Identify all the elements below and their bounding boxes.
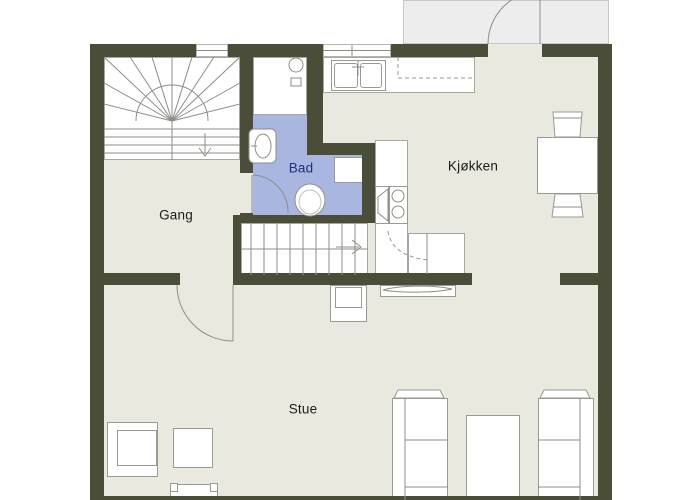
- entry-porch: [403, 0, 609, 44]
- sofa-facing-right: [392, 398, 448, 500]
- wc-nook: [253, 57, 307, 115]
- kitchen-sink-basin-left: [334, 63, 358, 88]
- floor-plan: Gang Bad Kjøkken Stue: [0, 0, 700, 500]
- room-label-gang: Gang: [159, 208, 193, 223]
- room-label-kjokken: Kjøkken: [448, 159, 498, 174]
- window-kitchen: [323, 44, 391, 57]
- wall-stair-bad: [240, 57, 253, 173]
- armchair-left-seat: [117, 430, 157, 466]
- staircase-lower-area: [241, 223, 368, 275]
- wall-bad-right: [362, 143, 375, 223]
- tv-bench: [380, 285, 456, 297]
- room-label-bad: Bad: [289, 161, 314, 176]
- kitchen-sink-basin-right: [360, 63, 382, 88]
- shower-cabinet: [334, 157, 363, 183]
- staircase-upper-area: [104, 57, 240, 160]
- wall-bottom: [90, 496, 612, 500]
- wall-top-a: [90, 44, 196, 57]
- dining-table: [537, 137, 598, 194]
- wall-bad-top-right: [307, 143, 363, 155]
- wall-top-c: [391, 44, 488, 57]
- wall-wc-kitchen: [307, 57, 323, 143]
- wall-bad-bottom: [240, 215, 368, 223]
- wall-right: [598, 44, 612, 500]
- room-label-stue: Stue: [289, 402, 318, 417]
- bathroom-door-gap: [240, 174, 253, 214]
- sofa-facing-left: [538, 398, 594, 500]
- armchair-under-stairs-seat: [335, 287, 362, 308]
- wall-divider-b: [233, 273, 472, 285]
- wall-divider-c: [560, 273, 612, 285]
- wall-divider-a: [90, 273, 180, 285]
- coffee-table: [466, 415, 520, 500]
- chair-bottom-arm-right: [210, 483, 218, 492]
- wall-top-b: [228, 44, 323, 57]
- window-stairs: [196, 44, 228, 57]
- entry-door-gap: [488, 44, 542, 57]
- side-table: [173, 428, 213, 468]
- chair-bottom-arm-left: [170, 483, 178, 492]
- wall-left: [90, 44, 104, 500]
- kitchen-counter-bottom: [408, 233, 465, 274]
- cooktop: [389, 186, 408, 224]
- oven: [375, 186, 389, 224]
